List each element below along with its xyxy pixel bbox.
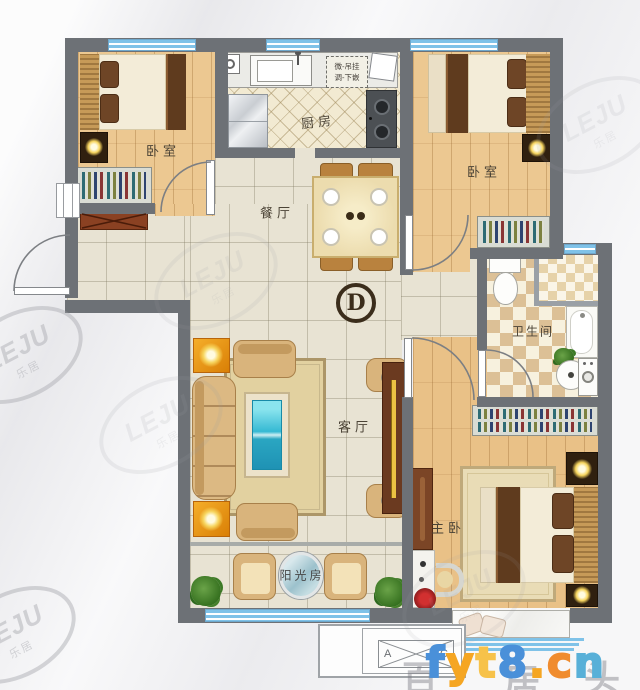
washer-knob bbox=[590, 362, 593, 365]
room-label-bedroom-left: 卧室 bbox=[146, 141, 180, 160]
bed-pillow bbox=[552, 493, 574, 529]
bed-foot-fold bbox=[480, 487, 496, 583]
plant-icon bbox=[375, 577, 405, 607]
wardrobe bbox=[412, 468, 433, 550]
burner-icon bbox=[374, 124, 390, 140]
table-centerpiece bbox=[346, 212, 354, 220]
bookshelf bbox=[477, 216, 550, 248]
window bbox=[410, 39, 498, 51]
bed-pillow bbox=[100, 61, 119, 88]
door-leaf bbox=[405, 215, 413, 270]
plate bbox=[322, 228, 340, 246]
stove bbox=[366, 90, 397, 148]
cosmetics bbox=[420, 561, 426, 567]
armchair-back bbox=[241, 528, 295, 538]
bed-runner bbox=[496, 487, 520, 583]
sink-basin bbox=[257, 60, 293, 82]
wall-left bbox=[65, 38, 78, 298]
room-label-bathroom: 卫生间 bbox=[512, 323, 554, 340]
cosmetics bbox=[419, 577, 424, 582]
bed-pillow bbox=[552, 535, 574, 573]
sunroom-divider bbox=[190, 542, 402, 546]
toilet-tank bbox=[489, 258, 521, 273]
window bbox=[266, 39, 320, 51]
armchair-back bbox=[238, 344, 292, 354]
room-label-sunroom: 阳光房 bbox=[279, 567, 324, 584]
door-leaf bbox=[404, 338, 412, 398]
room-label-master: 主卧 bbox=[431, 518, 465, 537]
armchair bbox=[233, 340, 296, 378]
room-label-bedroom-right: 卧室 bbox=[467, 162, 501, 181]
unit-label-circle: D bbox=[336, 283, 376, 323]
bed-foot-fold bbox=[428, 54, 446, 133]
flower-decor bbox=[414, 588, 436, 610]
table-centerpiece bbox=[357, 212, 365, 220]
kitchen-sink bbox=[250, 55, 312, 86]
chair-seat bbox=[437, 571, 453, 588]
lamp-icon bbox=[85, 138, 103, 156]
chair-cushion bbox=[332, 563, 361, 594]
lamp-icon bbox=[528, 139, 546, 157]
kitchen-note-line1: 微-吊挂 bbox=[335, 61, 360, 72]
coffee-table bbox=[244, 392, 290, 478]
shower-glass-wall bbox=[534, 255, 539, 306]
room-label-dining: 餐厅 bbox=[260, 203, 294, 222]
sofa-back bbox=[195, 381, 204, 495]
window bbox=[56, 183, 80, 218]
coffee-table-glass bbox=[252, 400, 282, 470]
dining-table bbox=[312, 176, 399, 258]
kitchen-note-box: 微-吊挂 调-下嵌 bbox=[326, 56, 368, 88]
wall-inner-left bbox=[178, 300, 190, 623]
wall-kitchen-bottom bbox=[215, 148, 295, 158]
book-spines bbox=[82, 172, 146, 199]
shower-floor bbox=[539, 255, 598, 303]
tv-screen bbox=[391, 380, 396, 498]
bed-runner bbox=[446, 54, 468, 133]
wall-entry-bottom bbox=[65, 300, 190, 313]
bed-pillow bbox=[507, 97, 527, 127]
bed-runner bbox=[166, 54, 186, 130]
bed-pillow bbox=[507, 59, 527, 89]
bed-headboard bbox=[80, 54, 99, 130]
sofa bbox=[192, 376, 236, 500]
sunroom-chair bbox=[324, 553, 367, 600]
leju-watermark: LEJU乐居 bbox=[0, 566, 92, 690]
chair-cushion bbox=[241, 563, 270, 594]
wall-master-west bbox=[402, 397, 413, 608]
bookshelf bbox=[76, 167, 152, 204]
wall-bedroom-right-east bbox=[550, 38, 563, 250]
burner-icon bbox=[374, 99, 390, 115]
washing-machine bbox=[578, 358, 598, 396]
window bbox=[205, 609, 370, 622]
fridge-door-split bbox=[229, 121, 267, 122]
stove-knob bbox=[369, 117, 372, 120]
book-spines bbox=[478, 409, 592, 419]
lamp-icon bbox=[572, 459, 592, 479]
bed-headboard bbox=[526, 54, 553, 133]
wall-bathroom-west bbox=[477, 255, 487, 350]
kitchen-note-line2: 调-下嵌 bbox=[335, 72, 360, 83]
wall-bathroom-south bbox=[477, 397, 598, 407]
plant-icon bbox=[191, 576, 221, 606]
toilet-bowl bbox=[493, 272, 518, 305]
plate bbox=[370, 228, 388, 246]
sunroom-chair bbox=[233, 553, 276, 600]
bed-headboard bbox=[574, 487, 598, 583]
washer-knob bbox=[583, 362, 586, 365]
book-spines bbox=[478, 422, 592, 432]
book-spines bbox=[483, 221, 544, 243]
window bbox=[564, 244, 596, 254]
fridge bbox=[228, 94, 268, 148]
lamp-icon bbox=[199, 343, 223, 367]
wall-kitchen-bottom bbox=[315, 148, 401, 158]
sink-drain bbox=[568, 372, 574, 378]
room-label-living: 客厅 bbox=[338, 417, 372, 436]
door-leaf bbox=[478, 350, 486, 397]
wardrobe-handle bbox=[420, 477, 425, 541]
door-leaf bbox=[206, 160, 215, 215]
bookshelf-double bbox=[472, 405, 598, 436]
door-arc bbox=[14, 235, 70, 291]
tub-faucet-icon bbox=[580, 313, 585, 318]
armchair bbox=[236, 503, 298, 541]
shoe-cabinet bbox=[80, 212, 148, 230]
cutting-board bbox=[368, 52, 397, 81]
lamp-icon bbox=[573, 586, 591, 604]
wall-right bbox=[598, 243, 612, 623]
unit-label: D bbox=[346, 290, 365, 316]
ac-label-a: A bbox=[384, 648, 391, 660]
washer-door-icon bbox=[582, 371, 594, 383]
wall-bedroom-kitchen-divider bbox=[215, 38, 228, 157]
plate bbox=[370, 188, 388, 206]
plate bbox=[322, 188, 340, 206]
bed-pillow bbox=[100, 94, 119, 123]
floor-plan-canvas: 微-吊挂 调-下嵌 D bbox=[0, 0, 640, 690]
bedroom-right-door-nook bbox=[413, 248, 470, 272]
site-url: fyt8.cn bbox=[426, 638, 606, 687]
site-watermark: 百 居 头 fyt8.cn bbox=[408, 636, 638, 690]
lamp-icon bbox=[199, 507, 223, 531]
window bbox=[108, 39, 196, 51]
door-leaf bbox=[14, 287, 70, 295]
